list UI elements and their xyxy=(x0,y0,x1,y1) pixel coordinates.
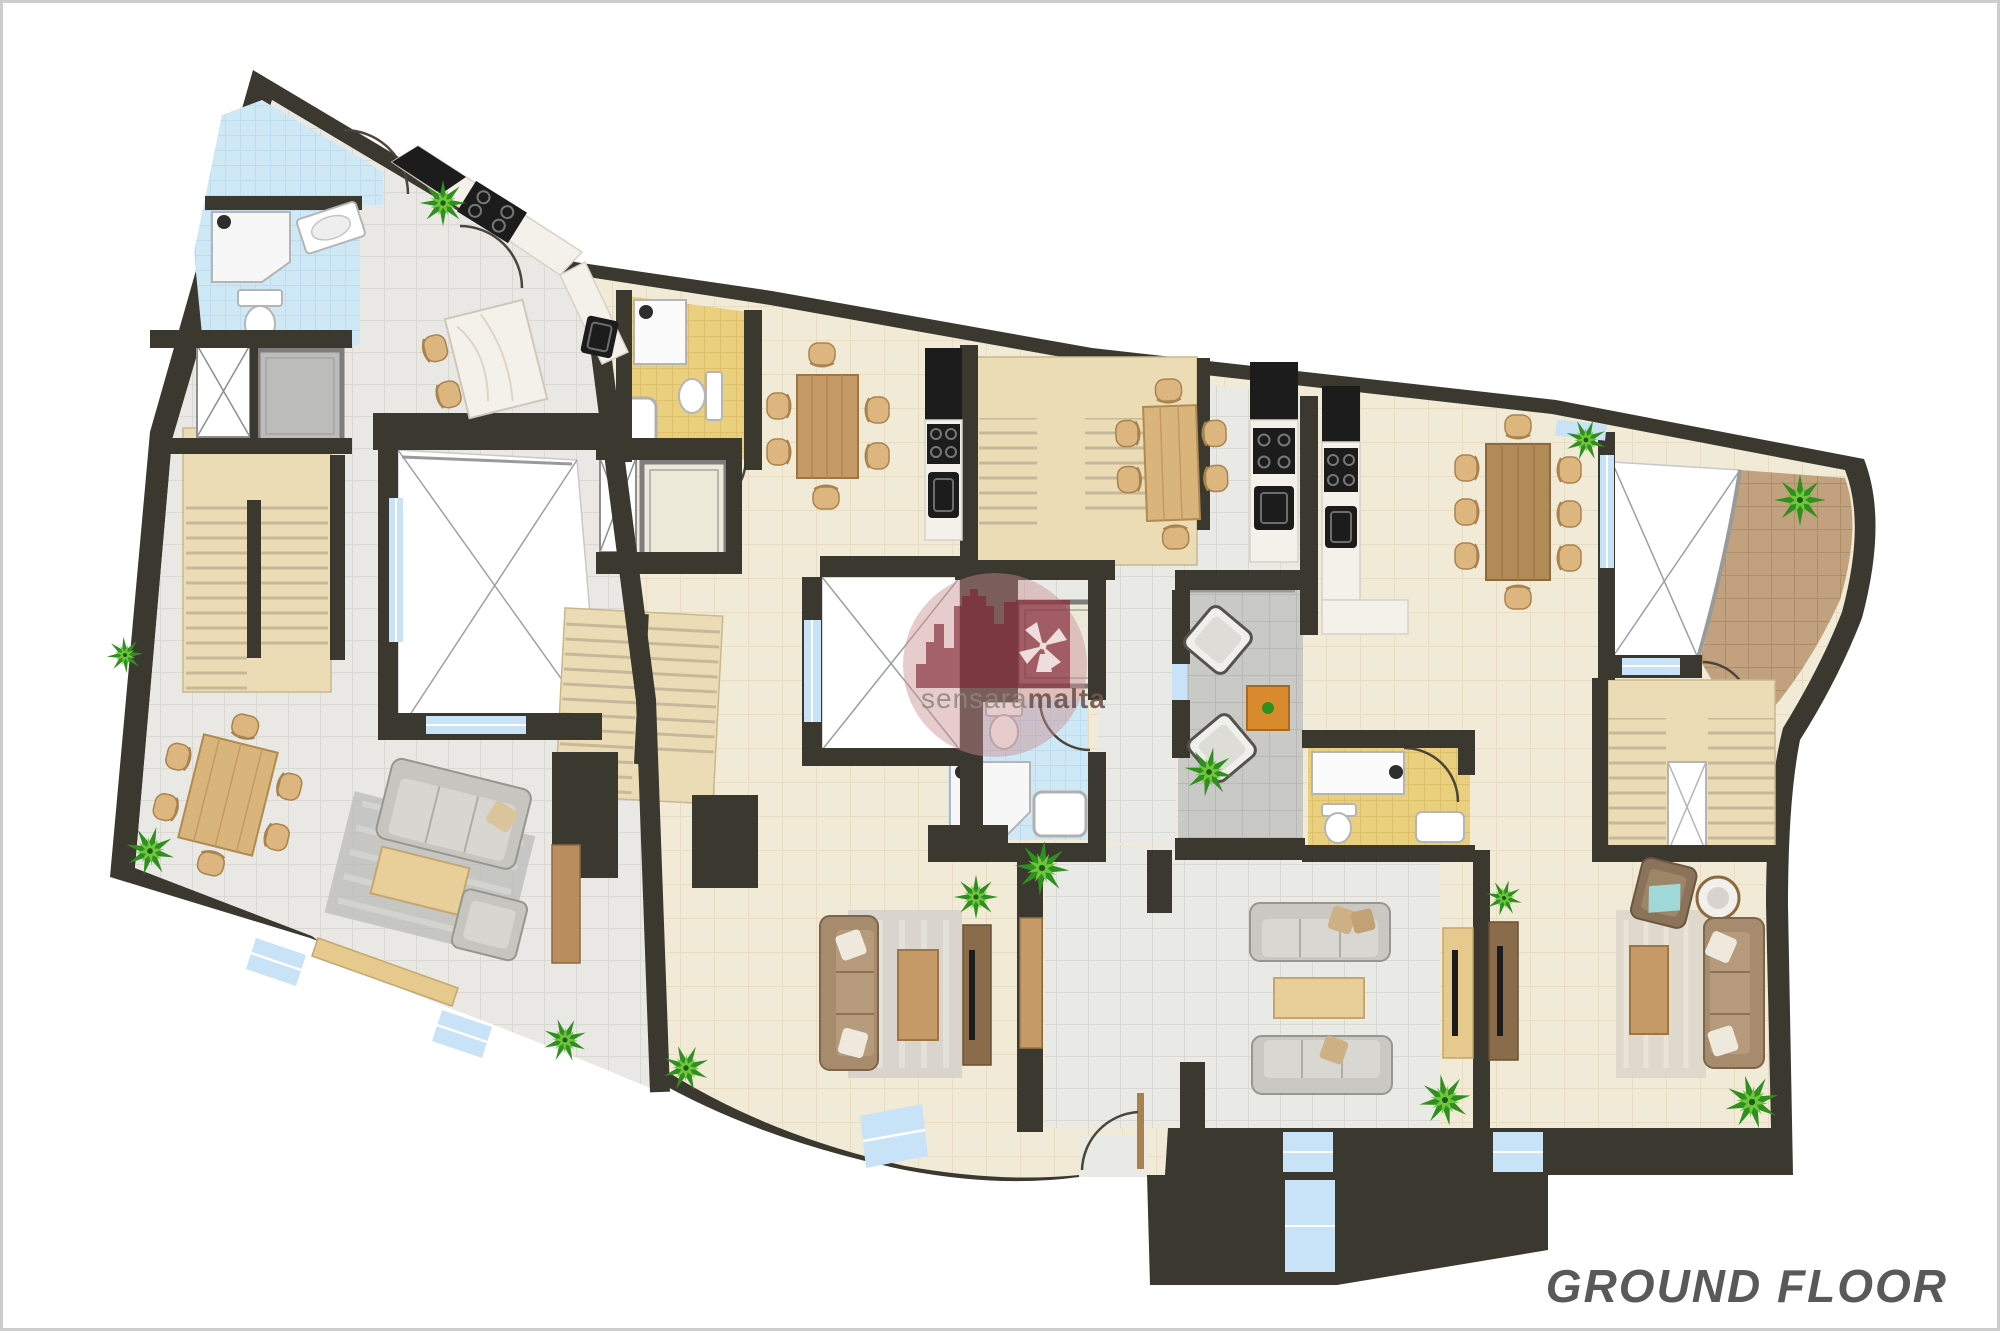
window xyxy=(426,716,526,734)
watermark-text: sensaramalta xyxy=(921,683,1106,714)
window xyxy=(389,498,403,642)
tv-sideboard xyxy=(1489,922,1518,1060)
hob-icon xyxy=(1324,448,1358,492)
tv-icon xyxy=(1497,946,1503,1036)
lift-apartment-2 xyxy=(642,462,726,562)
staircase-apartment-1 xyxy=(183,428,331,692)
window xyxy=(246,938,306,986)
plant-icon xyxy=(420,180,467,227)
door-leaf xyxy=(1137,1093,1144,1169)
console-table xyxy=(1020,918,1042,1048)
plant-icon xyxy=(954,875,998,919)
kitchen-apartment-3 xyxy=(1250,362,1298,562)
window xyxy=(1285,1180,1335,1272)
bathroom-sink xyxy=(1416,812,1464,842)
floor-plan-canvas: sensaramalta GROUND FLOOR xyxy=(0,0,2000,1331)
shower-head-icon xyxy=(217,215,231,229)
window xyxy=(1622,658,1680,675)
lift-apartment-1 xyxy=(258,350,342,442)
sofa xyxy=(820,916,878,1070)
sink-icon xyxy=(1254,486,1294,530)
shower-head-icon xyxy=(639,305,653,319)
tv-icon xyxy=(1452,950,1458,1036)
floor-plan-page: sensaramalta GROUND FLOOR xyxy=(0,0,2000,1331)
sink-icon xyxy=(928,472,959,518)
plan-title: GROUND FLOOR xyxy=(1546,1260,1948,1312)
window xyxy=(1493,1132,1543,1172)
tv-sideboard xyxy=(1443,928,1473,1058)
tv-icon xyxy=(969,950,975,1040)
kitchen-apartment-2 xyxy=(925,348,962,540)
window xyxy=(1172,664,1187,700)
tv-sideboard xyxy=(963,925,991,1065)
window xyxy=(1283,1132,1333,1172)
sideboard xyxy=(552,845,580,963)
sofa xyxy=(1704,918,1764,1068)
coffee-table xyxy=(1274,978,1364,1018)
coffee-table xyxy=(1630,946,1668,1034)
bathtub xyxy=(1034,792,1086,836)
staircase-apartment-4 xyxy=(1608,680,1775,852)
sofa xyxy=(1252,1035,1392,1094)
sofa xyxy=(1250,903,1390,961)
shower-head-icon xyxy=(1389,765,1403,779)
hob-icon xyxy=(927,424,960,464)
lift-shaft-apartment-1 xyxy=(197,345,250,437)
coffee-table xyxy=(1247,686,1289,730)
sink-icon xyxy=(1325,506,1357,548)
window xyxy=(804,620,821,722)
side-table xyxy=(1697,877,1739,919)
coffee-table xyxy=(898,950,938,1040)
bathroom-yellow-apartment-4 xyxy=(1308,748,1470,845)
window xyxy=(1600,455,1614,568)
hob-icon xyxy=(1253,428,1295,474)
